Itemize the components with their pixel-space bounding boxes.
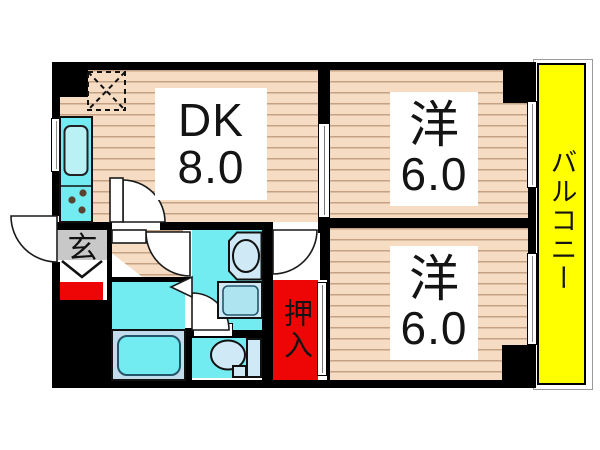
bedroom-top-name: 洋 [409, 100, 459, 151]
entrance-door-arc [11, 216, 57, 262]
dk-label: DK 8.0 [155, 88, 267, 200]
closet-label: 押入 [273, 286, 318, 374]
floor-plan: バルコニー [0, 0, 600, 450]
kitchen-counter [60, 117, 92, 222]
washbasin-icon [229, 233, 262, 280]
bedroom-top-size: 6.0 [401, 151, 468, 198]
bath-door-triangle-icon [171, 277, 192, 297]
entrance-label: 玄 [58, 229, 107, 261]
kitchen-sink-icon [65, 126, 88, 175]
washroom-door [112, 230, 190, 276]
refrigerator-space-icon [88, 72, 125, 110]
bedroom-bottom-label: 洋 6.0 [390, 246, 478, 360]
bedroom-bottom-size: 6.0 [401, 305, 468, 352]
bedroom-top-label: 洋 6.0 [390, 92, 478, 206]
dk-size: 8.0 [178, 144, 245, 191]
bathtub-icon [112, 330, 185, 380]
dk-name: DK [178, 97, 244, 144]
toilet-icon [211, 339, 261, 377]
washing-machine-pan-icon [218, 282, 262, 318]
bedroom-bottom-name: 洋 [409, 254, 459, 305]
bedroom-bottom-door-arc [273, 230, 317, 274]
